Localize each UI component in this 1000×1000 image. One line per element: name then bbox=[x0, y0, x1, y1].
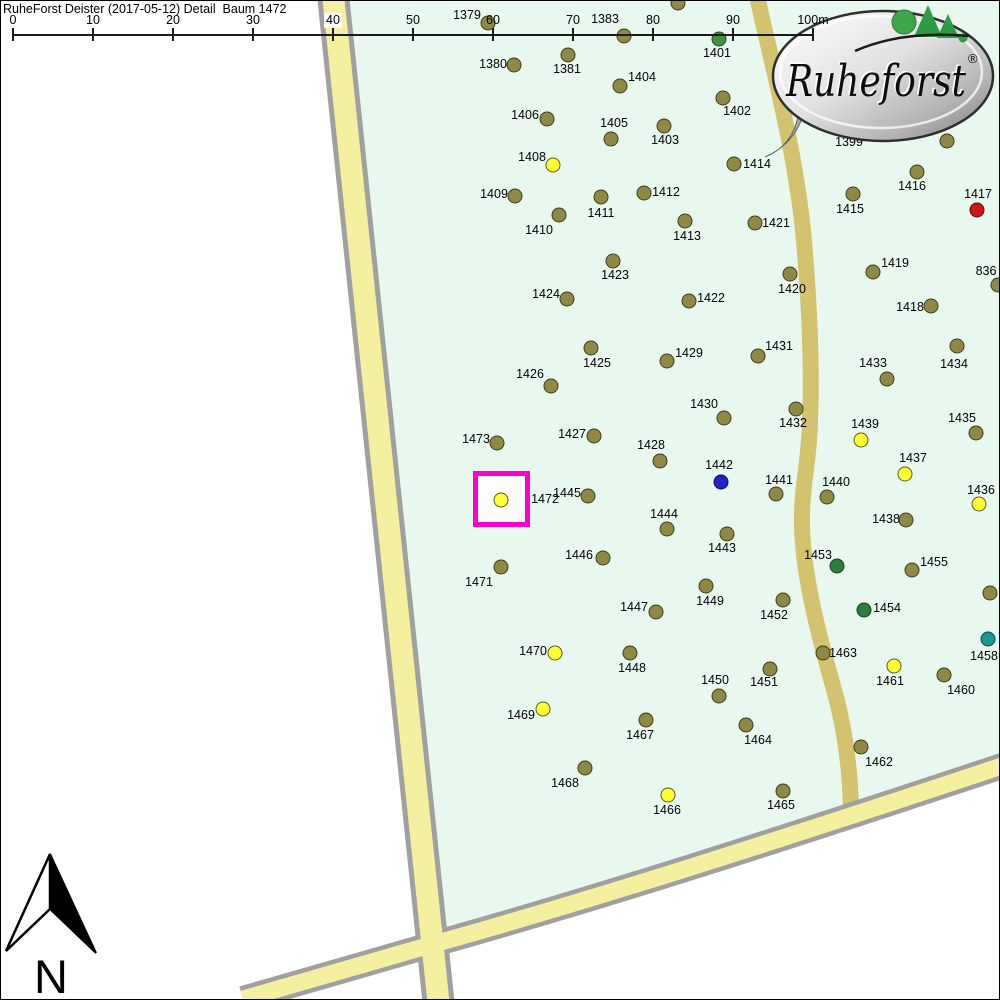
tree-dot[interactable] bbox=[905, 563, 920, 578]
tree-dot[interactable] bbox=[981, 632, 996, 647]
tree-dot[interactable] bbox=[783, 267, 798, 282]
tree-dot[interactable] bbox=[717, 411, 732, 426]
map-title: RuheForst Deister (2017-05-12) Detail Ba… bbox=[3, 3, 286, 17]
tree-dot[interactable] bbox=[937, 668, 952, 683]
tree-label: 1438 bbox=[872, 513, 900, 526]
tree-dot[interactable] bbox=[584, 341, 599, 356]
tree-label: 1405 bbox=[600, 117, 628, 130]
map-viewport: 1379138314011380138114041402140614051403… bbox=[0, 0, 1000, 1000]
tree-dot[interactable] bbox=[536, 702, 551, 717]
tree-dot[interactable] bbox=[751, 349, 766, 364]
tree-label: 1463 bbox=[829, 647, 857, 660]
tree-dot[interactable] bbox=[969, 426, 984, 441]
tree-dot[interactable] bbox=[776, 593, 791, 608]
tree-dot[interactable] bbox=[490, 436, 505, 451]
north-arrow-right-half bbox=[50, 854, 96, 953]
tree-dot[interactable] bbox=[552, 208, 567, 223]
tree-dot[interactable] bbox=[604, 132, 619, 147]
tree-label: 1429 bbox=[675, 347, 703, 360]
tree-label: 1443 bbox=[708, 542, 736, 555]
tree-label: 1420 bbox=[778, 283, 806, 296]
scale-bar-label: 60 bbox=[486, 14, 500, 27]
tree-dot[interactable] bbox=[991, 278, 1000, 293]
scale-bar-tick bbox=[92, 28, 94, 41]
tree-label: 1406 bbox=[511, 109, 539, 122]
tree-label: 1461 bbox=[876, 675, 904, 688]
scale-bar-tick bbox=[252, 28, 254, 41]
tree-label: 1447 bbox=[620, 601, 648, 614]
scale-bar-tick bbox=[172, 28, 174, 41]
tree-label: 1466 bbox=[653, 804, 681, 817]
tree-dot[interactable] bbox=[950, 339, 965, 354]
tree-label: 1432 bbox=[779, 417, 807, 430]
tree-dot[interactable] bbox=[972, 497, 987, 512]
scale-bar-tick bbox=[812, 28, 814, 41]
tree-dot[interactable] bbox=[661, 788, 676, 803]
tree-dot[interactable] bbox=[678, 214, 693, 229]
scale-bar-label: 80 bbox=[646, 14, 660, 27]
tree-dot[interactable] bbox=[540, 112, 555, 127]
tree-label: 1416 bbox=[898, 180, 926, 193]
tree-dot[interactable] bbox=[846, 187, 861, 202]
tree-label: 1435 bbox=[948, 412, 976, 425]
scale-bar-label: 70 bbox=[566, 14, 580, 27]
selected-tree-dot[interactable] bbox=[494, 493, 509, 508]
tree-label: 1460 bbox=[947, 684, 975, 697]
tree-dot[interactable] bbox=[857, 603, 872, 618]
tree-dot[interactable] bbox=[887, 659, 902, 674]
tree-label: 1465 bbox=[767, 799, 795, 812]
tree-label: 1424 bbox=[532, 288, 560, 301]
tree-label: 1462 bbox=[865, 756, 893, 769]
tree-label: 1445 bbox=[553, 487, 581, 500]
tree-dot[interactable] bbox=[596, 551, 611, 566]
tree-dot[interactable] bbox=[739, 718, 754, 733]
tree-label: 1411 bbox=[588, 207, 615, 220]
tree-label: 1412 bbox=[652, 186, 680, 199]
tree-dot[interactable] bbox=[820, 490, 835, 505]
tree-label: 1451 bbox=[750, 676, 778, 689]
tree-label: 1450 bbox=[701, 674, 729, 687]
tree-dot[interactable] bbox=[714, 475, 729, 490]
tree-dot[interactable] bbox=[970, 203, 985, 218]
tree-dot[interactable] bbox=[578, 761, 593, 776]
tree-label: 1444 bbox=[650, 508, 678, 521]
tree-label: 1427 bbox=[558, 428, 586, 441]
tree-label: 1419 bbox=[881, 257, 909, 270]
tree-dot[interactable] bbox=[639, 713, 654, 728]
scale-bar-tick bbox=[652, 28, 654, 41]
tree-dot[interactable] bbox=[594, 190, 609, 205]
tree-label: 1471 bbox=[465, 576, 493, 589]
tree-dot[interactable] bbox=[613, 79, 628, 94]
tree-label: 1430 bbox=[690, 398, 718, 411]
tree-label: 1426 bbox=[516, 368, 544, 381]
tree-label: 1408 bbox=[518, 151, 546, 164]
tree-dot[interactable] bbox=[748, 216, 763, 231]
tree-dot[interactable] bbox=[548, 646, 563, 661]
scale-bar-label: 90 bbox=[726, 14, 740, 27]
tree-label: 1452 bbox=[760, 609, 788, 622]
logo-wordmark: Ruheforst bbox=[785, 56, 966, 107]
tree-label: 1458 bbox=[970, 650, 998, 663]
tree-dot[interactable] bbox=[560, 292, 575, 307]
tree-dot[interactable] bbox=[866, 265, 881, 280]
tree-dot[interactable] bbox=[712, 689, 727, 704]
tree-dot[interactable] bbox=[776, 784, 791, 799]
tree-dot[interactable] bbox=[910, 165, 925, 180]
tree-label: 1415 bbox=[836, 203, 864, 216]
tree-label: 1418 bbox=[896, 301, 924, 314]
tree-dot[interactable] bbox=[637, 186, 652, 201]
tree-label: 1439 bbox=[851, 418, 879, 431]
tree-label: 1468 bbox=[551, 777, 579, 790]
tree-dot[interactable] bbox=[789, 402, 804, 417]
tree-label: 1433 bbox=[859, 357, 887, 370]
tree-dot[interactable] bbox=[623, 646, 638, 661]
tree-dot[interactable] bbox=[898, 467, 913, 482]
tree-label: 1442 bbox=[705, 459, 733, 472]
scale-bar-label: 40 bbox=[324, 13, 342, 28]
north-arrow-left-half bbox=[6, 854, 50, 951]
tree-label: 1409 bbox=[480, 188, 508, 201]
scale-bar-label: 100m bbox=[797, 14, 828, 27]
tree-dot[interactable] bbox=[494, 560, 509, 575]
tree-label: 1431 bbox=[765, 340, 793, 353]
tree-label: 1417 bbox=[964, 188, 992, 201]
tree-label: 1473 bbox=[462, 433, 490, 446]
tree-label: 1404 bbox=[628, 71, 656, 84]
tree-label: 1467 bbox=[626, 729, 654, 742]
tree-dot[interactable] bbox=[769, 487, 784, 502]
tree-dot[interactable] bbox=[983, 586, 998, 601]
tree-dot[interactable] bbox=[546, 158, 561, 173]
tree-label: 1381 bbox=[553, 63, 581, 76]
tree-dot[interactable] bbox=[508, 189, 523, 204]
tree-label: 1410 bbox=[525, 224, 553, 237]
tree-dot[interactable] bbox=[653, 454, 668, 469]
tree-label: 1434 bbox=[940, 358, 968, 371]
tree-label: 1425 bbox=[583, 357, 611, 370]
tree-label: 1453 bbox=[804, 549, 832, 562]
tree-label: 1446 bbox=[565, 549, 593, 562]
tree-label: 1454 bbox=[873, 602, 901, 615]
tree-label: 1469 bbox=[507, 709, 535, 722]
tree-label: 1402 bbox=[723, 105, 751, 118]
tree-dot[interactable] bbox=[657, 119, 672, 134]
tree-label: 1440 bbox=[822, 476, 850, 489]
tree-label: 1437 bbox=[899, 452, 927, 465]
tree-label: 1428 bbox=[637, 439, 665, 452]
tree-label: 1464 bbox=[744, 734, 772, 747]
scale-bar-tick bbox=[12, 28, 14, 41]
tree-label: 1403 bbox=[651, 134, 679, 147]
tree-dot[interactable] bbox=[924, 299, 939, 314]
tree-label: 1413 bbox=[673, 230, 701, 243]
tree-dot[interactable] bbox=[880, 372, 895, 387]
tree-dot[interactable] bbox=[660, 522, 675, 537]
tree-dot[interactable] bbox=[587, 429, 602, 444]
tree-dot[interactable] bbox=[544, 379, 559, 394]
north-arrow: N bbox=[1, 841, 141, 1000]
scale-bar-tick bbox=[572, 28, 574, 41]
scale-bar-tick bbox=[732, 28, 734, 41]
tree-dot[interactable] bbox=[699, 579, 714, 594]
tree-label: 1422 bbox=[697, 292, 725, 305]
tree-dot[interactable] bbox=[727, 157, 742, 172]
tree-label: 1448 bbox=[618, 662, 646, 675]
tree-label: 1441 bbox=[765, 474, 793, 487]
north-label: N bbox=[34, 950, 68, 1000]
tree-dot[interactable] bbox=[581, 489, 596, 504]
scale-bar-tick bbox=[332, 28, 334, 41]
tree-label: 836 bbox=[976, 265, 997, 278]
tree-dot[interactable] bbox=[660, 354, 675, 369]
tree-label: 1449 bbox=[696, 595, 724, 608]
tree-label: 1421 bbox=[762, 217, 790, 230]
scale-bar-label: 50 bbox=[406, 14, 420, 27]
tree-dot[interactable] bbox=[854, 433, 869, 448]
tree-dot[interactable] bbox=[606, 254, 621, 269]
tree-label: 1436 bbox=[967, 484, 995, 497]
tree-dot[interactable] bbox=[720, 527, 735, 542]
tree-dot[interactable] bbox=[682, 294, 697, 309]
tree-dot[interactable] bbox=[854, 740, 869, 755]
scale-bar-tick bbox=[492, 28, 494, 41]
tree-dot[interactable] bbox=[649, 605, 664, 620]
tree-label: 1470 bbox=[519, 645, 547, 658]
tree-label: 1455 bbox=[920, 556, 948, 569]
scale-bar-tick bbox=[412, 28, 414, 41]
tree-label: 1423 bbox=[601, 269, 629, 282]
tree-dot[interactable] bbox=[899, 513, 914, 528]
